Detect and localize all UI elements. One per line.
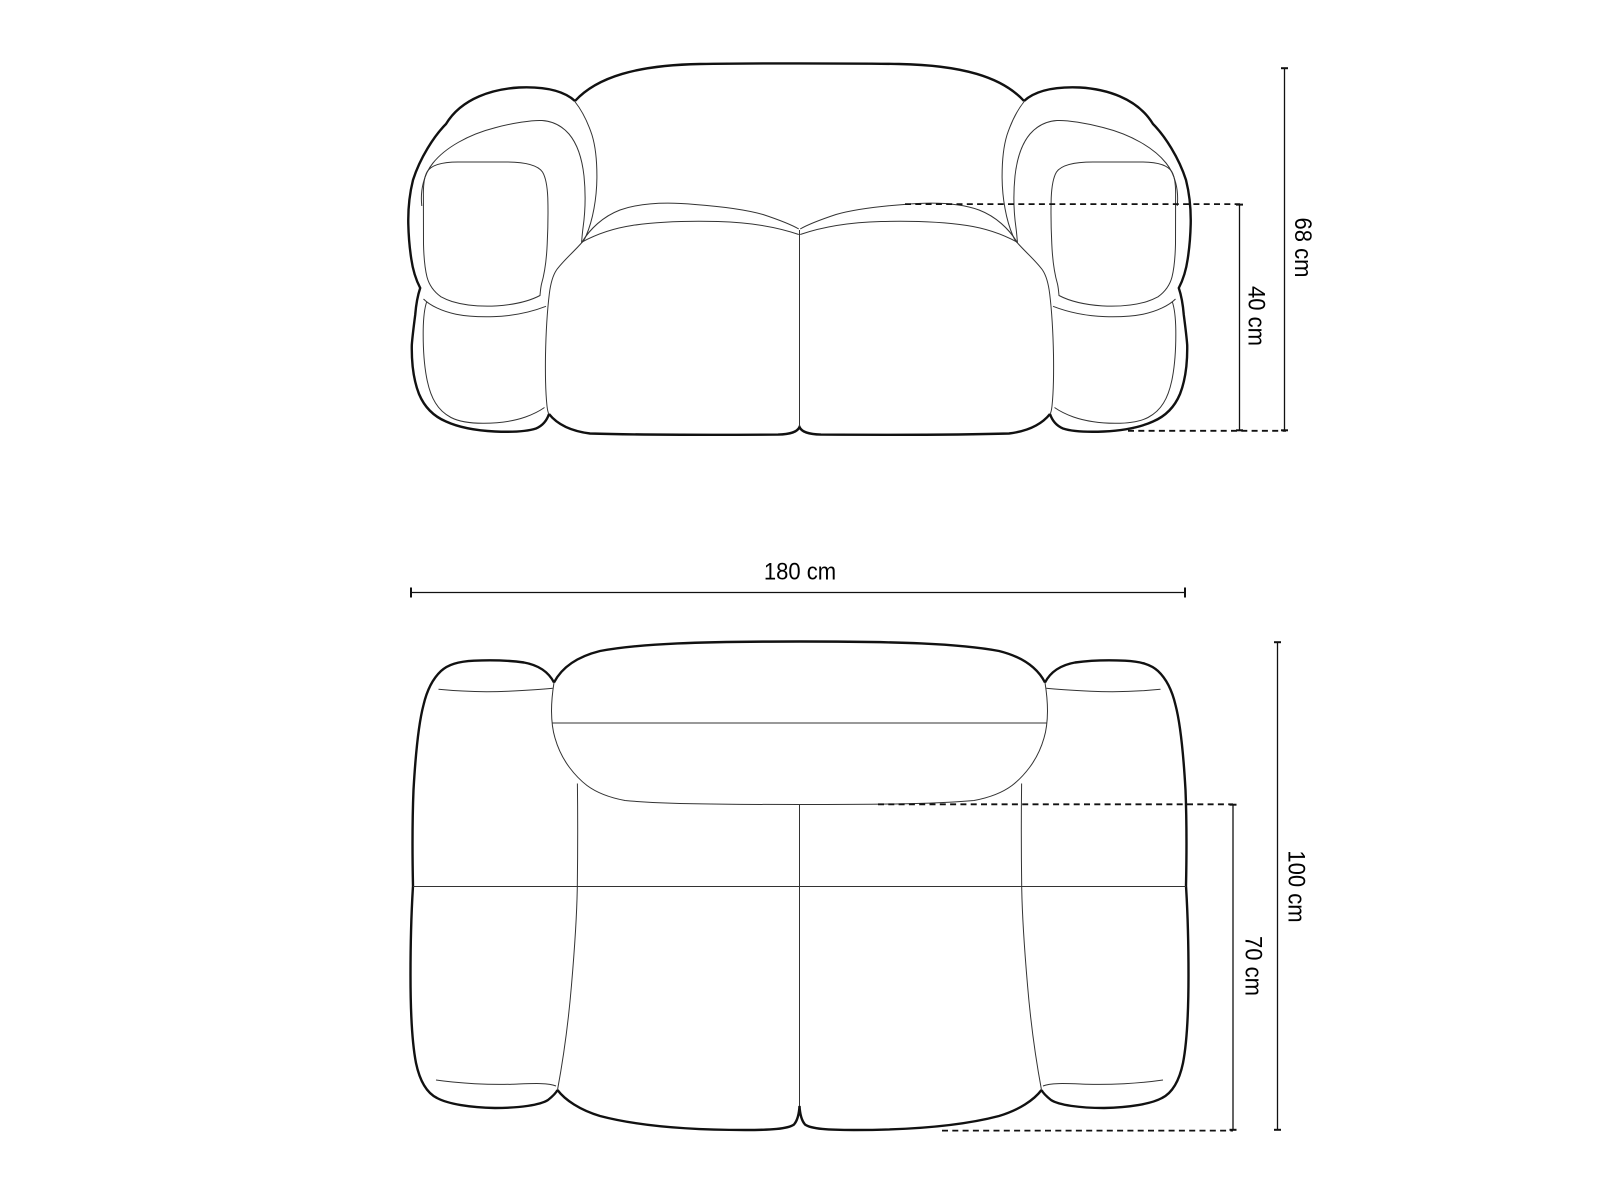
svg-text:70 cm: 70 cm bbox=[1240, 936, 1267, 996]
svg-text:40 cm: 40 cm bbox=[1243, 286, 1270, 346]
svg-text:68 cm: 68 cm bbox=[1290, 217, 1317, 277]
svg-text:100 cm: 100 cm bbox=[1283, 850, 1310, 922]
svg-text:180 cm: 180 cm bbox=[764, 557, 836, 584]
